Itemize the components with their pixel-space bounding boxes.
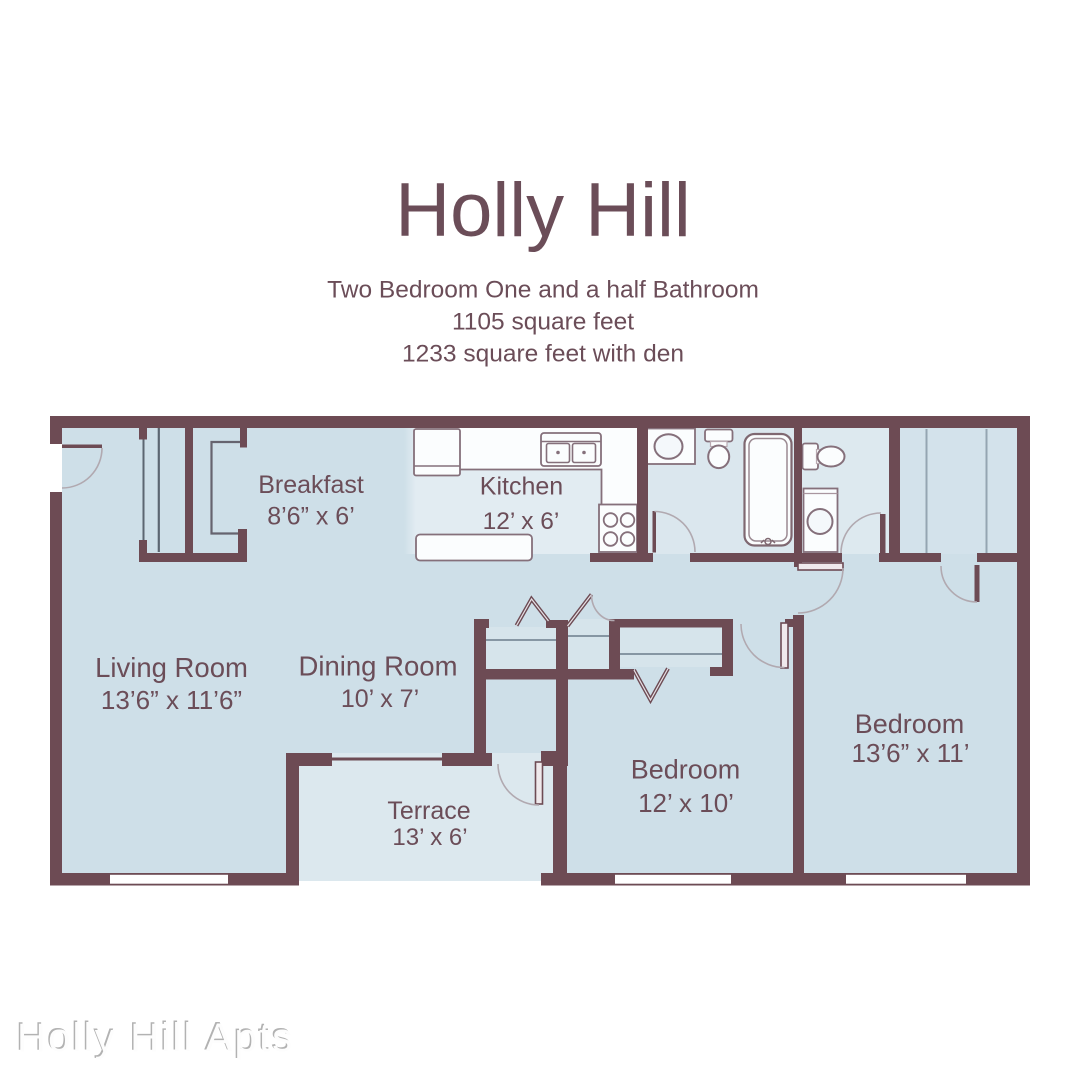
svg-text:Dining Room: Dining Room (299, 651, 458, 682)
svg-text:Living Room: Living Room (95, 652, 248, 683)
svg-text:13’6” x 11’6”: 13’6” x 11’6” (101, 685, 242, 715)
svg-text:Bedroom: Bedroom (631, 755, 741, 785)
svg-text:1105 square feet: 1105 square feet (452, 309, 634, 336)
svg-text:Bedroom: Bedroom (855, 709, 965, 739)
svg-text:Terrace: Terrace (387, 797, 470, 825)
svg-text:Breakfast: Breakfast (258, 471, 364, 499)
svg-text:12’ x 6’: 12’ x 6’ (483, 508, 560, 535)
svg-text:8’6” x 6’: 8’6” x 6’ (267, 503, 355, 531)
svg-text:Kitchen: Kitchen (480, 473, 563, 501)
svg-text:1233 square feet with den: 1233 square feet with den (402, 341, 684, 368)
svg-text:10’ x 7’: 10’ x 7’ (341, 685, 419, 713)
svg-text:Holly Hill Apts: Holly Hill Apts (17, 1016, 295, 1060)
svg-text:13’6” x 11’: 13’6” x 11’ (851, 738, 969, 768)
svg-text:12’ x 10’: 12’ x 10’ (638, 788, 734, 818)
svg-text:13’ x 6’: 13’ x 6’ (392, 824, 467, 851)
svg-text:Two Bedroom One and a half Bat: Two Bedroom One and a half Bathroom (327, 277, 759, 304)
svg-text:Holly Hill: Holly Hill (395, 168, 691, 253)
